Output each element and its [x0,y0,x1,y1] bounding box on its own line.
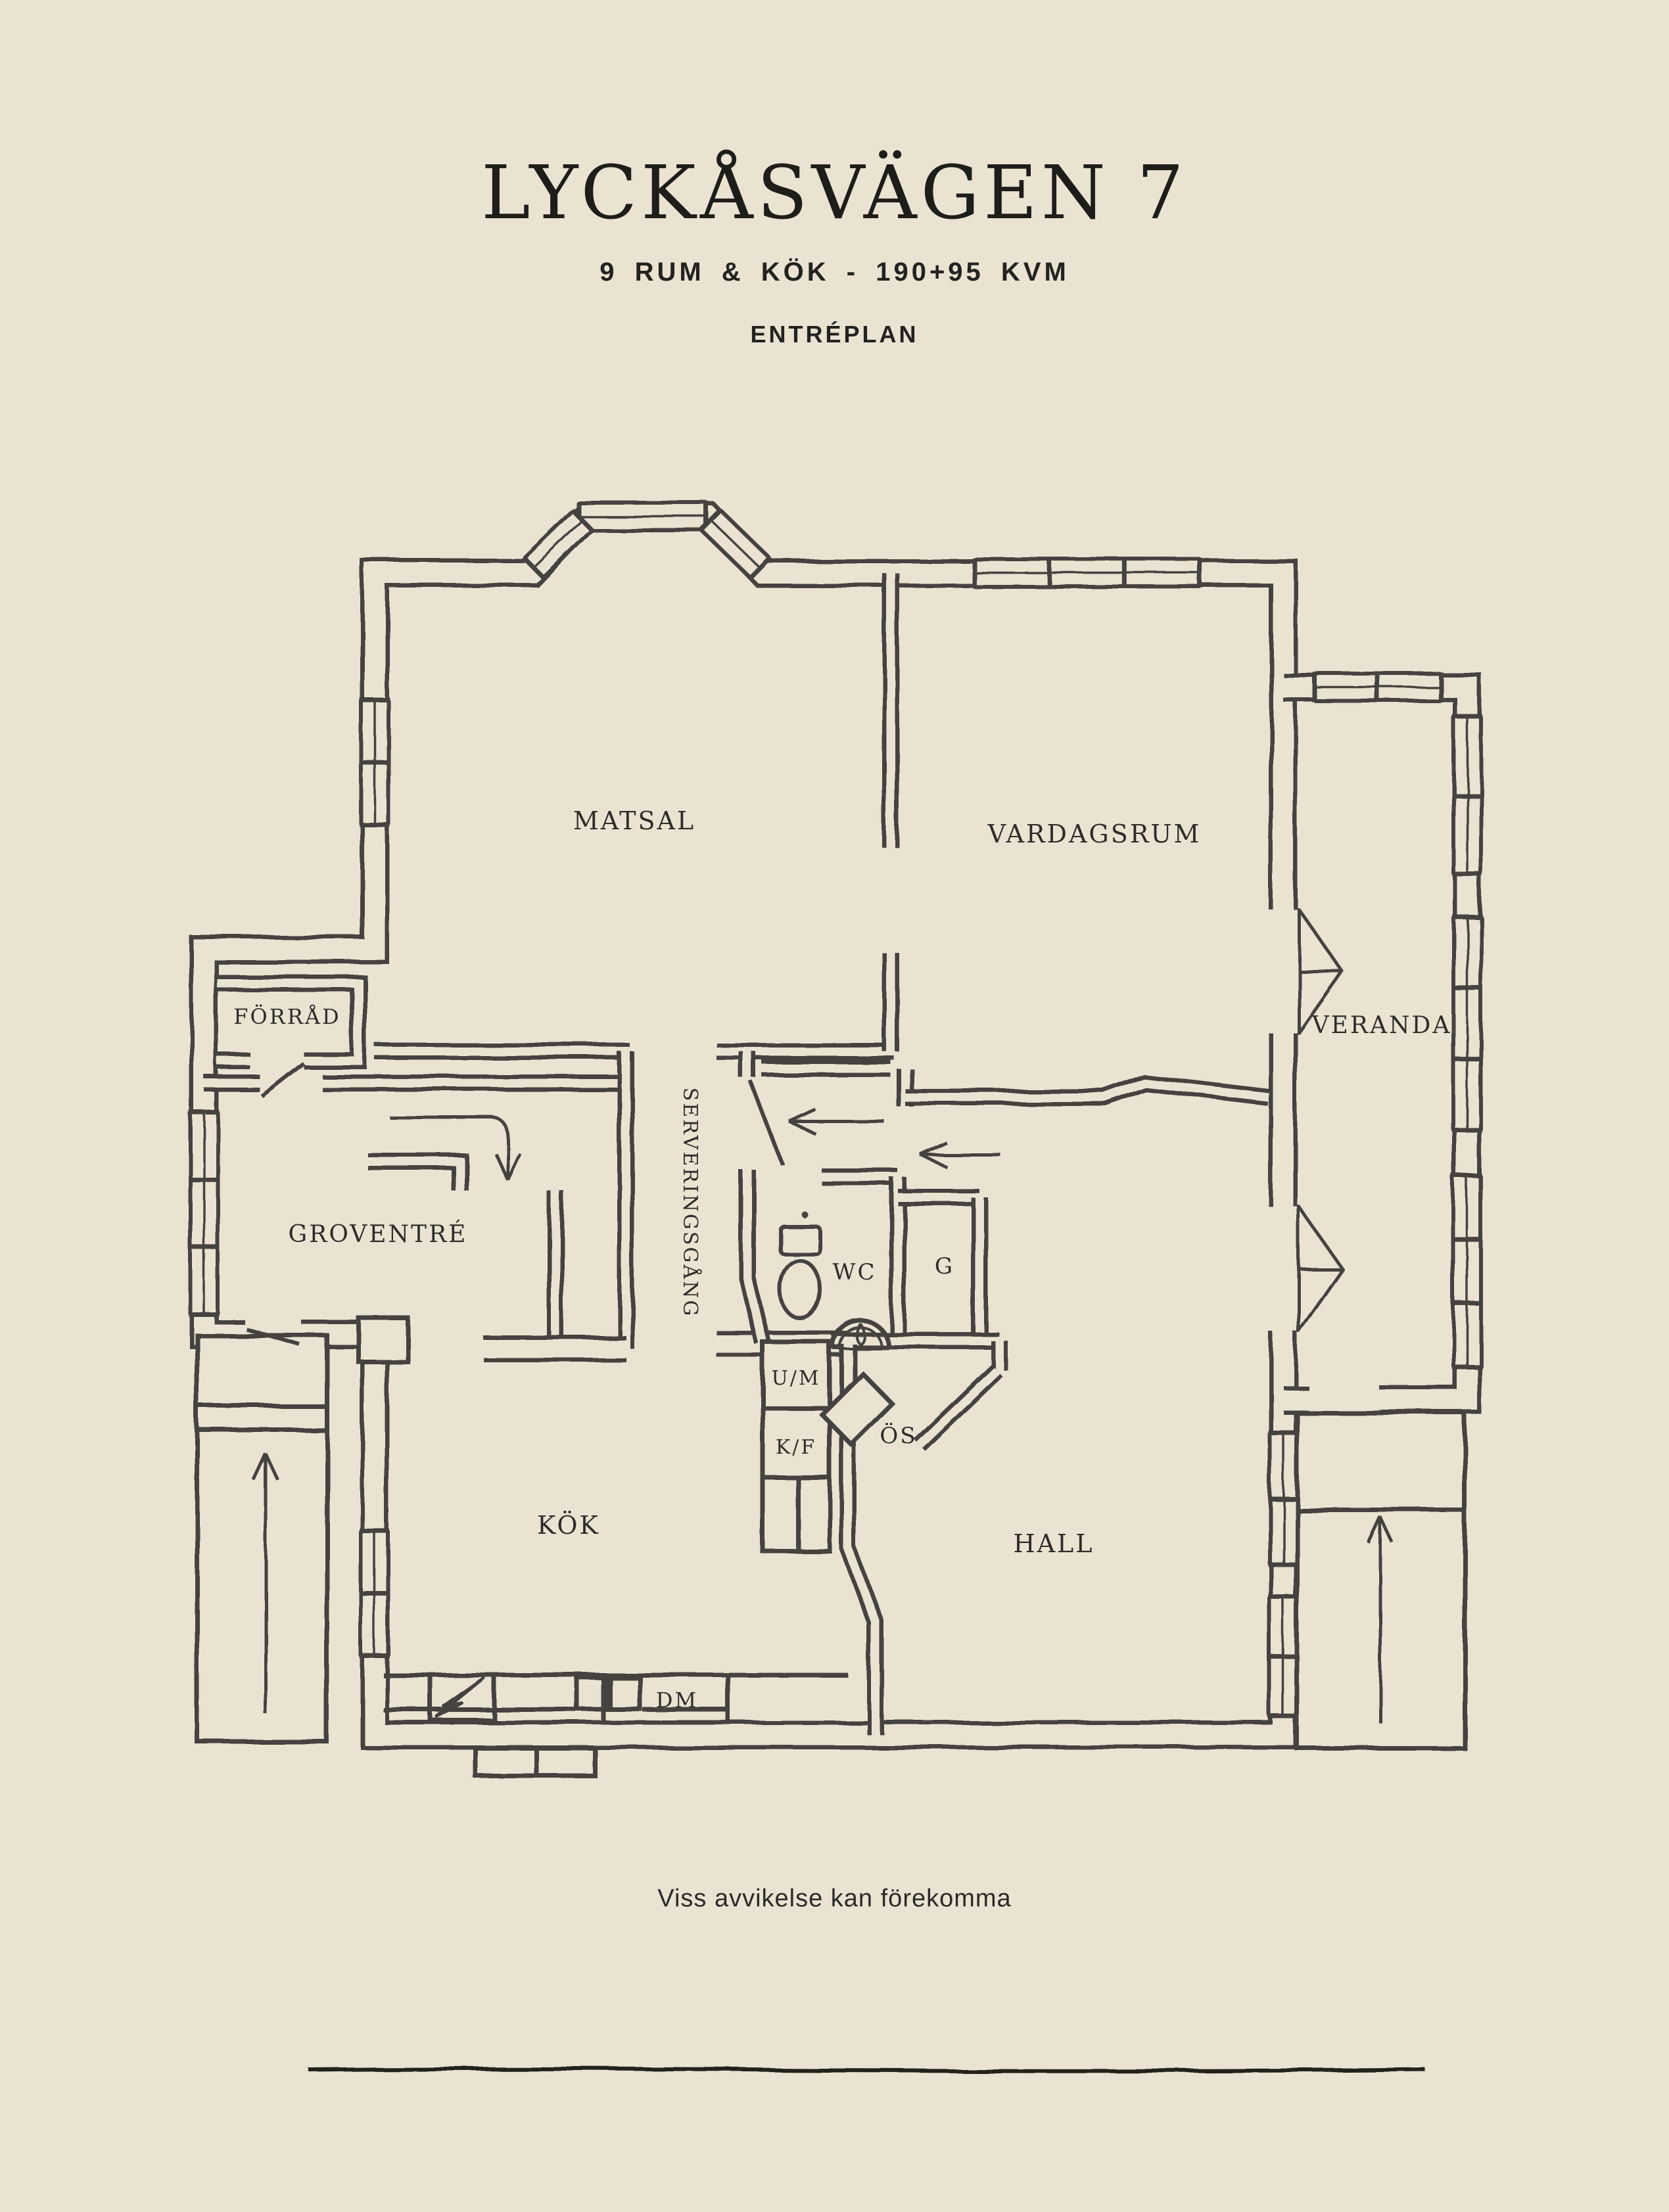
room-label-oppen-spis: ÖS [880,1422,917,1449]
wall-core [919,1370,997,1444]
room-label-veranda: VERANDA [1311,1012,1452,1039]
room-label-kok: KÖK [537,1511,600,1540]
page-subtitle: 9 RUM & KÖK - 190+95 KVM [0,258,1669,287]
kitchen-sink-right [610,1678,640,1709]
disclaimer-text: Viss avvikelse kan förekomma [0,1885,1669,1913]
toilet-tank [780,1226,820,1254]
door-leaf [751,1081,782,1164]
door-swing-triangle [1299,1207,1342,1269]
room-label-vardagsrum: VARDAGSRUM [987,819,1202,848]
toilet-bowl [780,1260,820,1318]
arrow-head [920,1155,947,1167]
entry-steps-left [197,1335,327,1741]
arrow-head [507,1153,520,1180]
page-title: LYCKÅSVÄGEN 7 [0,156,1669,230]
room-label-dm: DM [656,1688,698,1713]
arrow-head [495,1153,507,1180]
wall [1283,687,1467,1400]
room-label-wc: WC [833,1259,877,1285]
wall-core [1283,687,1467,1400]
bottom-rule [309,2069,1425,2071]
door-swing-triangle [1299,910,1342,971]
room-label-forrad: FÖRRÅD [233,1004,341,1029]
door-leaf [262,1063,304,1096]
toilet-flush-button [801,1211,808,1218]
room-label-hall: HALL [1013,1529,1094,1558]
room-label-serveringsgang: SERVERINGSGÅNG [678,1088,702,1318]
floor-label: ENTRÉPLAN [0,321,1669,348]
plan-graphics [189,501,1482,2071]
room-label-groventre: GROVENTRÉ [289,1220,468,1248]
room-label-matsal: MATSAL [573,806,695,835]
wall-pillar [358,1318,408,1362]
arrow-head [920,1142,947,1155]
door-swing-triangle [1299,1269,1342,1331]
arrow-head [789,1109,815,1121]
room-label-garderob: G [935,1253,954,1279]
wall [368,1162,460,1191]
room-label-um: U/M [771,1367,820,1390]
room-label-kf: K/F [776,1436,816,1459]
arrow-head [789,1121,815,1134]
